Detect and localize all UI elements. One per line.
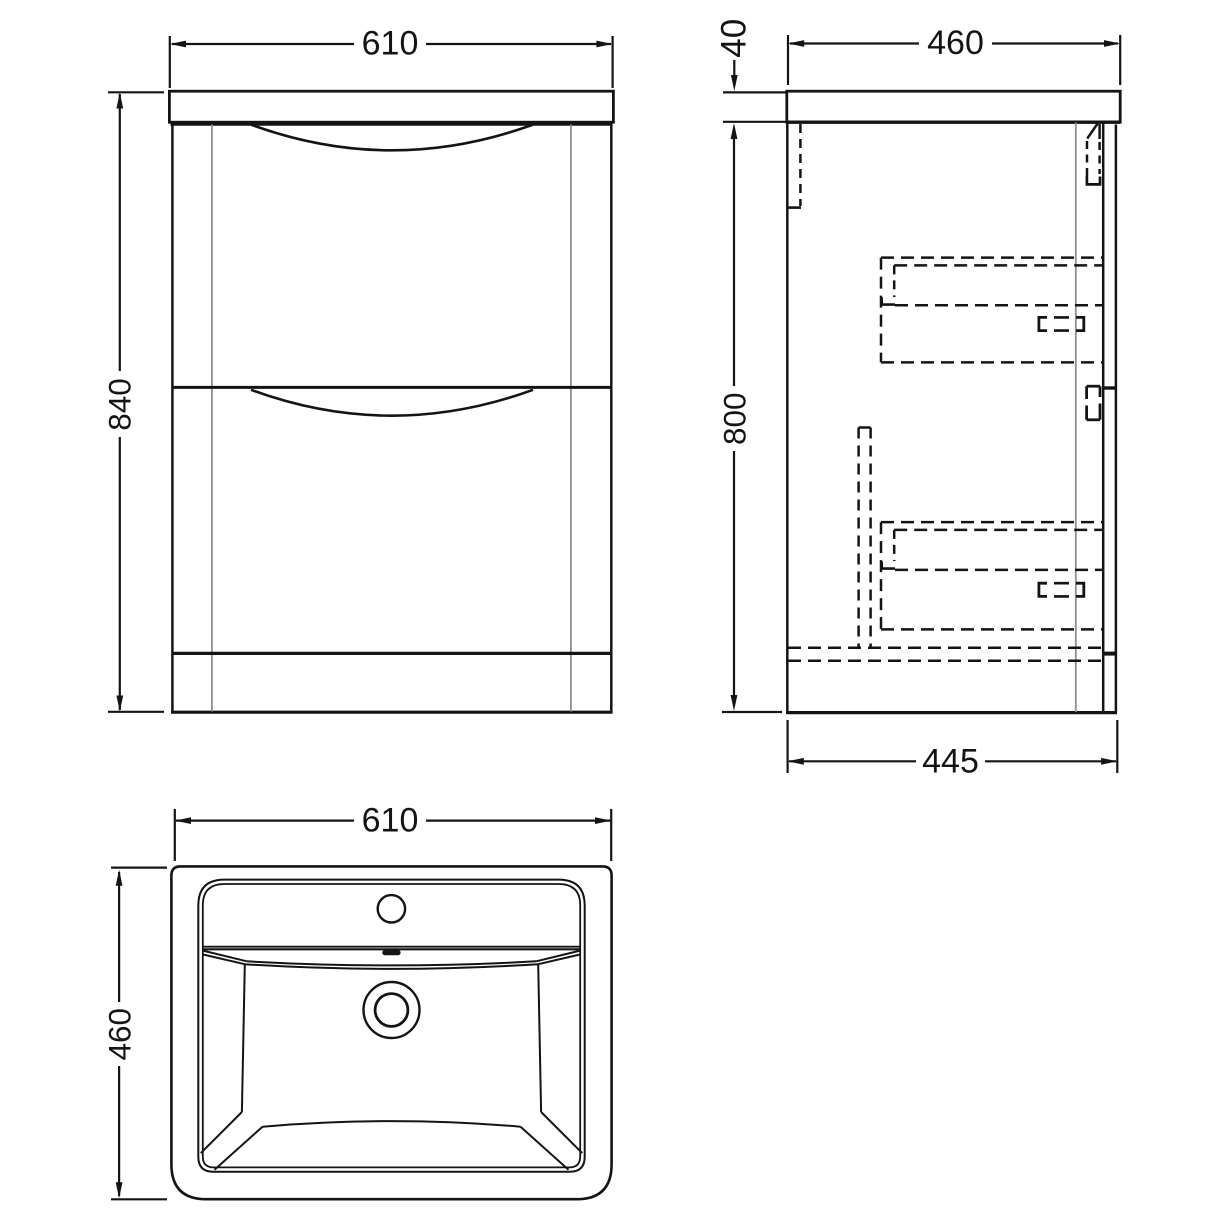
svg-text:445: 445 bbox=[922, 742, 979, 780]
svg-text:610: 610 bbox=[362, 802, 419, 840]
svg-text:840: 840 bbox=[101, 378, 137, 431]
svg-text:800: 800 bbox=[716, 392, 752, 445]
svg-text:460: 460 bbox=[927, 24, 984, 62]
svg-text:610: 610 bbox=[362, 25, 419, 63]
svg-text:40: 40 bbox=[715, 19, 754, 58]
svg-text:460: 460 bbox=[101, 1008, 137, 1061]
